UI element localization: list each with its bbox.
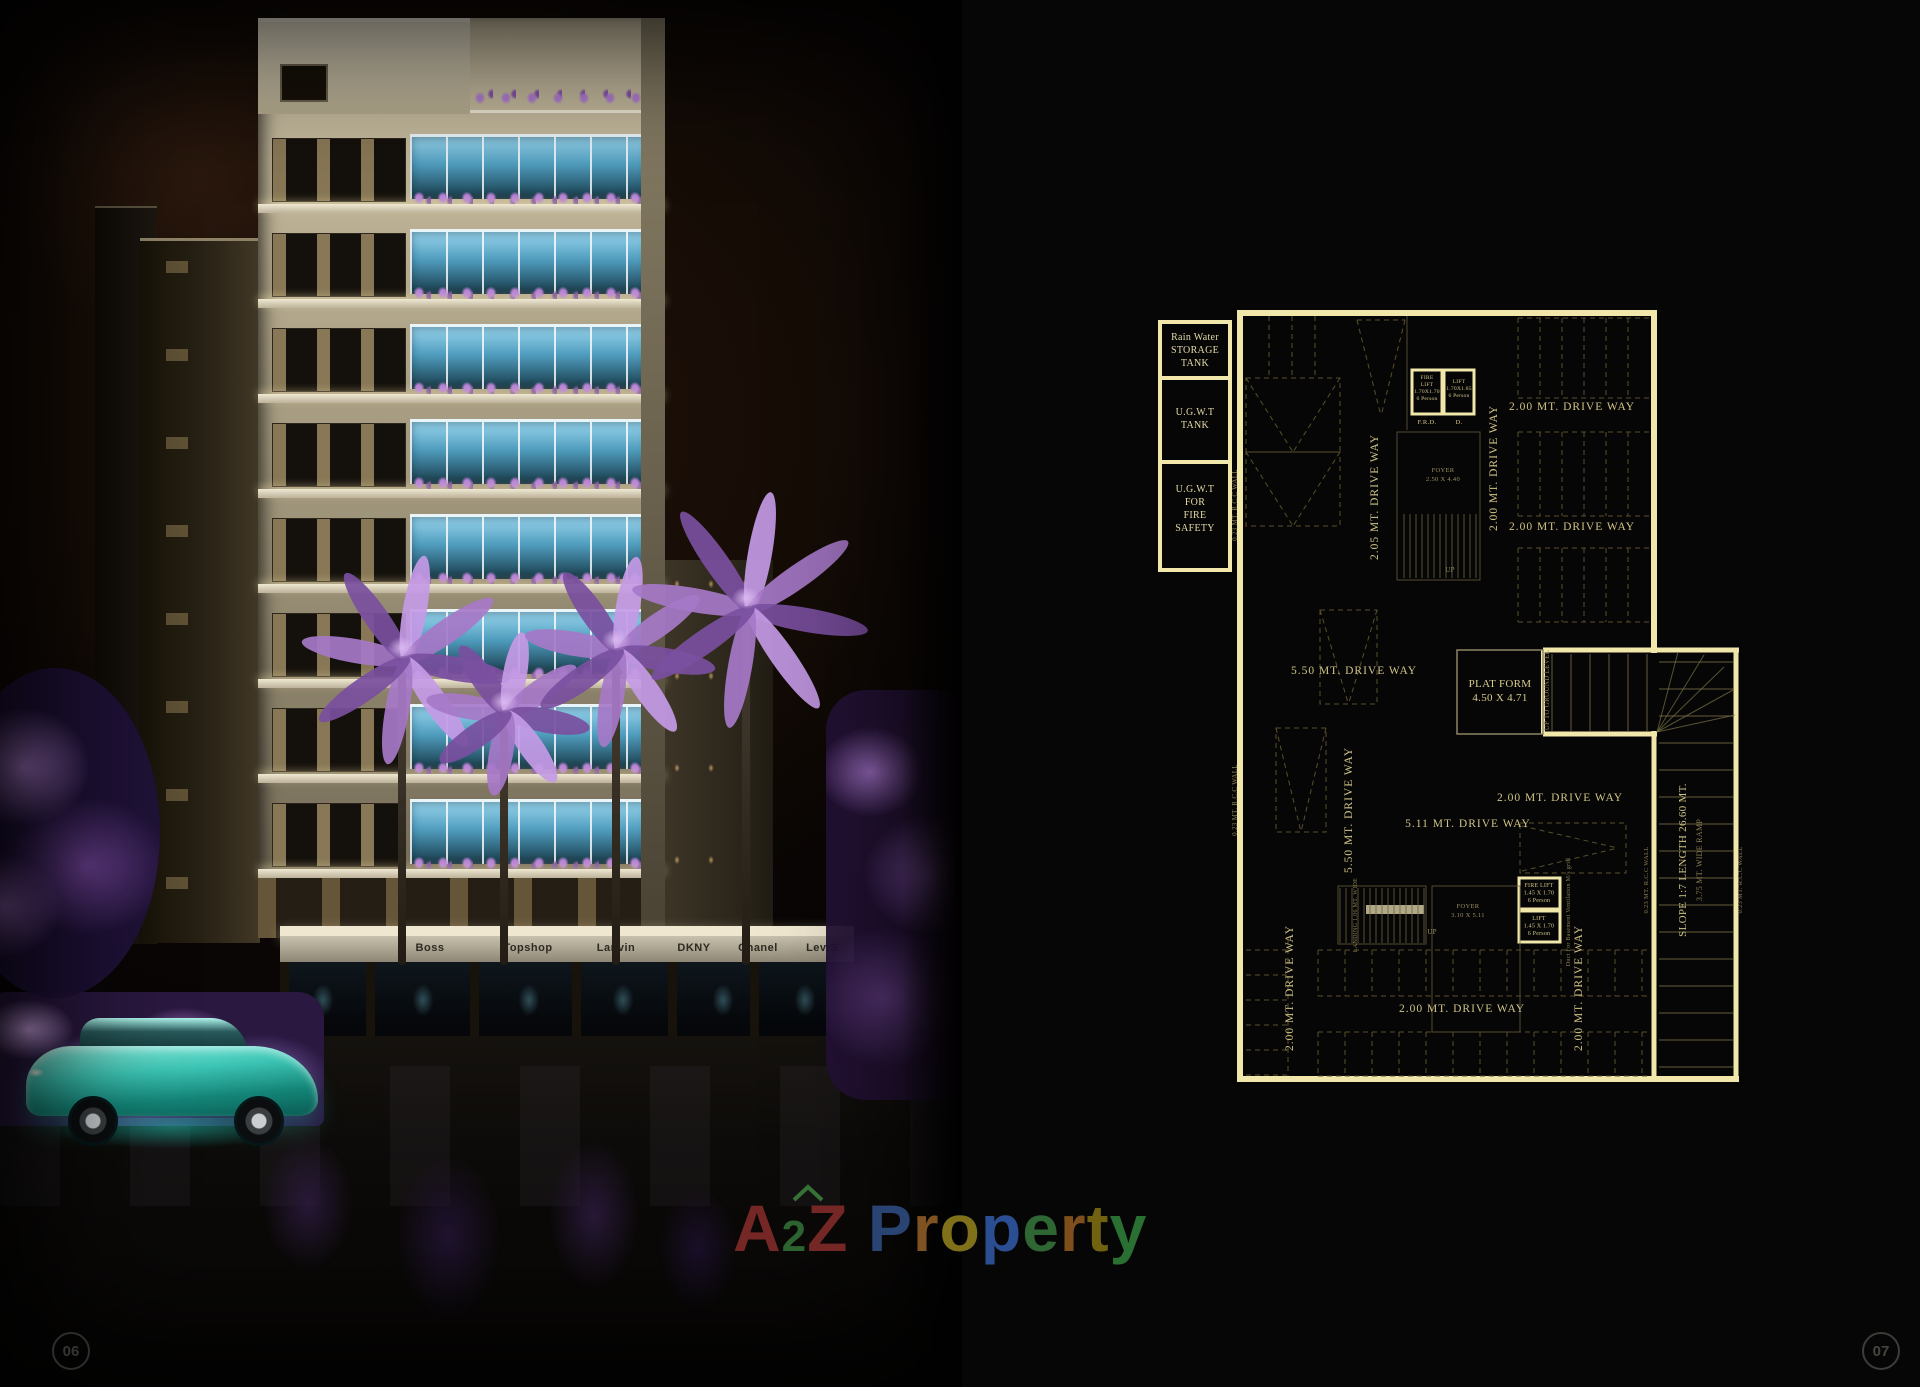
driveway-label: 2.00 MT. DRIVE WAY: [1497, 792, 1623, 804]
logo-letter: y: [1110, 1190, 1148, 1266]
stall-line: [1522, 826, 1618, 848]
tank-label: STORAGE: [1171, 345, 1219, 356]
page-number-left: 06: [52, 1332, 90, 1370]
lift-label: LIFT: [1532, 916, 1546, 922]
lift-label: 6 Person: [1528, 898, 1550, 904]
plan-annotation: FOYER: [1457, 903, 1480, 910]
plan-annotation: 2.50 X 4.40: [1426, 476, 1460, 483]
plan-annotation: 0.23 MT. R.C.C WALL: [1231, 469, 1239, 541]
lift-label: 6 Person: [1528, 931, 1550, 937]
brochure-page: BossTopshopLanvinDKNYChanelLeviS BASEMEN…: [0, 0, 1920, 1387]
driveway-label: 2.00 MT. DRIVE WAY: [1399, 1003, 1525, 1015]
lift-label: FIRE: [1421, 375, 1434, 381]
parking-stalls: [1246, 316, 1650, 1076]
stall-line: [1357, 320, 1381, 416]
logo-letter: p: [981, 1190, 1022, 1266]
lift-label: LIFT: [1421, 382, 1434, 388]
driveway-label: 5.50 MT. DRIVE WAY: [1291, 665, 1417, 677]
tank-label: U.G.W.T: [1176, 407, 1215, 418]
logo-letter: e: [1022, 1190, 1060, 1266]
lift-label: 1.45 X 1.70: [1524, 924, 1555, 930]
fan-line: [1657, 652, 1678, 732]
plan-annotation: Duct For Basement Ventilation M/s grill: [1566, 858, 1572, 966]
plan-annotation: UP TO GROUND LEVEL: [1543, 650, 1551, 731]
tank-label: Rain Water: [1171, 332, 1219, 343]
tank-label: FOR: [1185, 497, 1205, 508]
plan-annotation: LANDING 1.06 MT. WIDE: [1353, 878, 1359, 952]
driveway-label: 2.00 MT. DRIVE WAY: [1573, 925, 1585, 1051]
plan-annotation: 3.75 MT. WIDE RAMP: [1695, 819, 1704, 901]
tank-label: SAFETY: [1175, 523, 1215, 534]
stall-box: [1276, 728, 1326, 832]
page-number-left-value: 06: [63, 1343, 80, 1360]
stall-box: [1320, 610, 1377, 704]
fan-line: [1657, 690, 1733, 732]
a2z-logo: A2Z Property: [733, 1190, 1147, 1266]
lift-label: 6 Person: [1448, 393, 1469, 399]
stall-line: [1293, 452, 1340, 526]
ramp-turn-fan: [1657, 652, 1735, 732]
driveway-label: 2.00 MT. DRIVE WAY: [1284, 925, 1296, 1051]
stall-line: [1246, 378, 1293, 452]
plan-annotation: 3.10 X 5.11: [1451, 912, 1485, 919]
plan-annotation: D.: [1456, 419, 1463, 426]
stair-treads: [1340, 514, 1476, 943]
driveway-label: 5.11 MT. DRIVE WAY: [1405, 818, 1531, 830]
driveway-label: 2.00 MT. DRIVE WAY: [1509, 401, 1635, 413]
driveway-label: 2.00 MT. DRIVE WAY: [1509, 521, 1635, 533]
stall-line: [1301, 728, 1326, 832]
house-roof-icon: [791, 1184, 825, 1202]
lift-label: 1.45 X 1.70: [1524, 891, 1555, 897]
lift-label: 1.70X1.70: [1414, 389, 1439, 395]
stall-box: [1246, 378, 1340, 452]
driveway-label: 2.05 MT. DRIVE WAY: [1369, 434, 1381, 560]
plan-annotation: F.R.D.: [1418, 419, 1437, 426]
stall-line: [1381, 320, 1405, 416]
page-number-right-value: 07: [1873, 1343, 1890, 1360]
plan-annotation: FOYER: [1432, 467, 1455, 474]
lift-label: 6 Person: [1416, 396, 1437, 402]
basement-plan: 2.05 MT. DRIVE WAY2.00 MT. DRIVE WAY2.00…: [0, 0, 1920, 1387]
plan-annotation: 0.23 MT. R.C.C WALL: [1737, 846, 1744, 913]
stall-line: [1276, 728, 1301, 832]
plan-annotation: SLOPE 1:7 LENGTH 26.60 MT.: [1677, 783, 1689, 937]
stall-box: [1520, 823, 1626, 873]
plan-annotation: 4.50 X 4.71: [1472, 692, 1527, 704]
logo-letter: t: [1087, 1190, 1110, 1266]
lift-label: 1.70X1.85: [1446, 386, 1471, 392]
logo-letter: P: [868, 1190, 913, 1266]
logo-letter: o: [940, 1190, 981, 1266]
stall-box: [1246, 452, 1340, 526]
tank-label: FIRE: [1184, 510, 1207, 521]
stall-line: [1246, 452, 1293, 526]
plan-annotation: UP: [1427, 928, 1437, 936]
stall-line: [1320, 610, 1349, 704]
logo-letter: r: [1060, 1190, 1087, 1266]
tank-label: TANK: [1181, 358, 1210, 369]
plan-annotation: UP: [1445, 566, 1455, 574]
lift-boxes: [1412, 370, 1560, 942]
page-number-right: 07: [1862, 1332, 1900, 1370]
fan-line: [1657, 715, 1735, 732]
logo-letter: [848, 1190, 867, 1266]
stall-line: [1349, 610, 1378, 704]
logo-letter: A: [733, 1190, 782, 1266]
tank-label: TANK: [1181, 420, 1210, 431]
plan-annotation: 0.23 MT. R.C.C WALL: [1231, 764, 1239, 836]
logo-letter: 2: [782, 1212, 807, 1262]
driveway-label: 2.00 MT. DRIVE WAY: [1488, 405, 1500, 531]
tank-label: U.G.W.T: [1176, 484, 1215, 495]
lift-label: FIRE LIFT: [1525, 883, 1554, 889]
plan-annotation: 0.23 MT. R.C.C WALL: [1643, 846, 1650, 913]
lift-label: LIFT: [1453, 379, 1466, 385]
plan-annotation: PLAT FORM: [1469, 678, 1532, 690]
stair-landing: [1366, 905, 1424, 914]
logo-letter: r: [913, 1190, 940, 1266]
stall-line: [1293, 378, 1340, 452]
driveway-label: 5.50 MT. DRIVE WAY: [1343, 747, 1355, 873]
